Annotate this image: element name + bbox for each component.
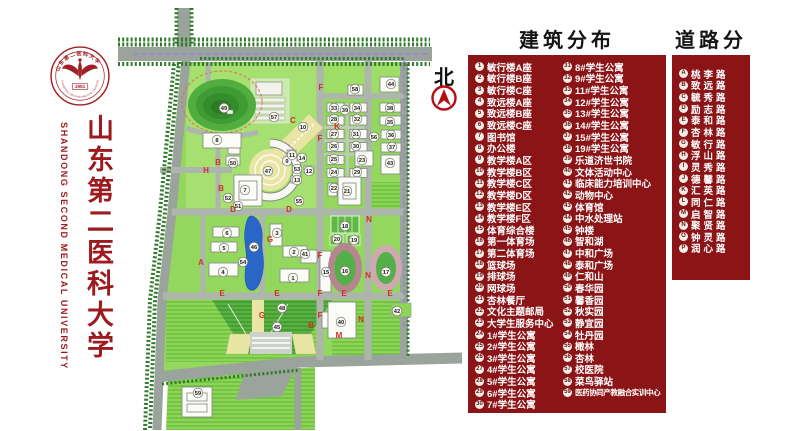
road-letter: F [318,311,323,320]
road-letter: F [318,134,323,143]
road-letter: B [215,158,221,167]
item-badge: 12 [475,190,484,199]
map-marker-number: 2 [292,250,295,256]
item-label: 润心路 [691,241,729,255]
map-marker-number: 56 [371,135,378,141]
map-marker-number: 26 [331,144,338,150]
item-badge: 57 [563,365,572,374]
item-badge: 19 [475,272,484,281]
road-letter: B [218,184,224,193]
map-marker-number: 20 [334,237,340,243]
map-marker-number: 31 [353,132,360,138]
item-badge: 11 [475,179,484,188]
item-badge: 31 [563,62,572,71]
item-badge: O [679,232,688,241]
item-badge: 35 [563,109,572,118]
map-marker-number: 43 [387,161,394,167]
item-badge: 16 [475,237,484,246]
item-badge: 9 [475,155,484,164]
item-badge: 55 [563,342,572,351]
item-badge: 6 [475,121,484,130]
road-letter: C [290,116,296,125]
item-badge: 14 [475,214,484,223]
roads-column: A桃李路B致远路C毓秀路D励志路E泰和路F杏林路G敏行路H浮山路I灵秀路J德馨路… [679,68,767,254]
buildings-legend-panel: 1敏行楼A座2敏行楼B座3敏行楼C座4致远楼A座5致远楼B座6致远楼C座7图书馆… [468,55,666,413]
map-marker-number: 39 [342,108,349,114]
map-marker-number: 49 [221,106,228,112]
item-badge: 34 [563,97,572,106]
building-item: 307#学生公寓 [475,399,563,411]
item-badge: 1 [475,62,484,71]
road-letter: E [274,289,280,298]
campus-map-poster: 山东第二医科大学 SHANDONG SECOND MEDICAL UNIVERS… [0,0,798,431]
map-marker-number: 37 [389,145,395,151]
map-marker-number: 10 [300,125,306,131]
map-marker-number: 38 [387,106,394,112]
map-marker-number: 44 [388,82,395,88]
item-badge: H [679,151,688,160]
item-badge: 36 [563,121,572,130]
campus-map: 1234567891011121314151617181920212223242… [98,0,472,431]
item-badge: 47 [563,249,572,258]
map-marker-number: 16 [342,269,349,275]
item-badge: 53 [563,318,572,327]
item-badge: 5 [475,109,484,118]
road-letter: H [203,166,209,175]
road-letter: G [259,311,265,320]
map-marker-number: 55 [296,199,303,205]
map-marker-number: 34 [354,106,361,112]
map-marker-number: 42 [394,309,400,315]
map-marker-number: 59 [195,391,202,397]
road-letter: F [319,83,324,92]
item-badge: G [679,139,688,148]
item-badge: P [679,244,688,253]
map-marker-number: 54 [240,260,247,266]
item-badge: 52 [563,307,572,316]
item-badge: 28 [475,377,484,386]
item-badge: 40 [563,167,572,176]
map-marker-number: 17 [383,270,389,276]
road-letter: D [230,205,236,214]
map-marker-number: 24 [331,170,338,176]
map-marker-number: 35 [387,120,394,126]
roads-legend-panel: A桃李路B致远路C毓秀路D励志路E泰和路F杏林路G敏行路H浮山路I灵秀路J德馨路… [672,55,750,280]
road-letter: B [308,321,314,330]
road-letter: G [267,235,273,244]
item-badge: 20 [475,283,484,292]
road-item: P润心路 [679,243,767,255]
map-marker-number: 32 [354,117,360,123]
item-badge: 38 [563,144,572,153]
item-badge: 42 [563,190,572,199]
item-badge: 22 [475,307,484,316]
item-badge: E [679,116,688,125]
item-badge: 3 [475,86,484,95]
item-badge: I [679,162,688,171]
map-marker-number: 22 [331,186,337,192]
road-letter: K [334,122,340,131]
north-indicator: 北 [433,66,456,110]
building-item: 59医药协同产教融合实训中心 [563,387,663,399]
item-badge: C [679,93,688,102]
item-badge: 51 [563,295,572,304]
road-letter: F [318,289,323,298]
building-item: 58菜鸟驿站 [563,375,663,387]
map-marker-number: 53 [294,167,301,173]
item-label: 医药协同产教融合实训中心 [575,387,660,398]
zhihe-lake [245,216,264,290]
logo-year: 1951 [75,84,86,90]
road-letter: N [365,271,371,280]
item-badge: J [679,174,688,183]
road-letter: E [219,289,225,298]
map-marker-number: 11 [289,153,296,159]
item-label: 菜鸟驿站 [575,374,613,388]
item-badge: 46 [563,237,572,246]
item-badge: 2 [475,74,484,83]
item-badge: 37 [563,132,572,141]
buildings-column-1: 1敏行楼A座2敏行楼B座3敏行楼C座4致远楼A座5致远楼B座6致远楼C座7图书馆… [475,61,563,413]
road-letter: M [336,331,343,340]
map-marker-number: 50 [230,161,236,167]
item-badge: 58 [563,377,572,386]
item-badge: 10 [475,167,484,176]
item-badge: 15 [475,225,484,234]
road-letter: N [366,215,372,224]
item-badge: 4 [475,97,484,106]
item-badge: 39 [563,155,572,164]
item-badge: 59 [563,388,572,397]
item-badge: 23 [475,318,484,327]
map-marker-number: 14 [299,156,306,162]
map-marker-number: 30 [353,144,359,150]
map-marker-number: 15 [323,270,330,276]
map-marker-number: 25 [331,157,338,163]
road-letter: A [198,258,204,267]
map-marker-number: 13 [294,178,301,184]
road-letter: F [318,251,323,260]
map-marker-number: 29 [354,170,361,176]
item-badge: A [679,69,688,78]
university-title-en: SHANDONG SECOND MEDICAL UNIVERSITY [59,122,69,370]
item-badge: 45 [563,225,572,234]
item-badge: 30 [475,400,484,409]
item-badge: 50 [563,283,572,292]
road-letter: E [387,289,393,298]
map-marker-number: 12 [306,169,312,175]
item-label: 7#学生公寓 [487,397,536,411]
south-gate [226,332,316,354]
item-badge: 24 [475,330,484,339]
item-badge: 33 [563,86,572,95]
item-badge: L [679,197,688,206]
map-marker-number: 7 [243,188,246,194]
map-marker-number: 19 [351,238,358,244]
map-marker-number: 27 [331,132,337,138]
map-marker-number: 46 [251,245,258,251]
road-letter: D [286,205,292,214]
map-marker-number: 41 [302,252,309,258]
buildings-legend-title: 建筑分布 [468,24,666,53]
buildings-column-2: 318#学生公寓329#学生公寓3311#学生公寓3412#学生公寓3513#学… [563,61,663,413]
renhe-hill [182,71,262,133]
item-badge: D [679,104,688,113]
item-badge: 25 [475,342,484,351]
map-marker-number: 52 [225,196,231,202]
map-marker-number: 33 [331,106,338,112]
item-badge: 54 [563,330,572,339]
road-letter: E [341,289,347,298]
item-badge: 26 [475,353,484,362]
item-badge: 41 [563,179,572,188]
map-marker-number: 18 [342,224,349,230]
item-badge: 27 [475,365,484,374]
map-marker-number: 45 [274,325,281,331]
item-badge: 48 [563,260,572,269]
item-badge: N [679,221,688,230]
map-marker-number: 57 [271,115,277,121]
item-badge: 32 [563,74,572,83]
map-marker-number: 23 [359,158,366,164]
item-badge: 13 [475,202,484,211]
item-badge: 7 [475,132,484,141]
item-badge: 56 [563,353,572,362]
map-marker-number: 47 [265,169,271,175]
item-badge: 21 [475,295,484,304]
item-badge: 17 [475,249,484,258]
item-badge: 43 [563,202,572,211]
item-badge: 29 [475,388,484,397]
map-marker-number: 58 [352,87,359,93]
road-letter: N [358,315,364,324]
item-badge: 18 [475,260,484,269]
item-badge: 44 [563,214,572,223]
item-badge: B [679,81,688,90]
item-badge: K [679,186,688,195]
item-badge: F [679,128,688,137]
map-marker-number: 21 [344,189,351,195]
map-marker-number: 40 [338,320,344,326]
map-marker-number: 48 [279,306,286,312]
item-badge: M [679,209,688,218]
item-badge: 8 [475,144,484,153]
map-marker-number: 36 [388,133,395,139]
item-badge: 49 [563,272,572,281]
